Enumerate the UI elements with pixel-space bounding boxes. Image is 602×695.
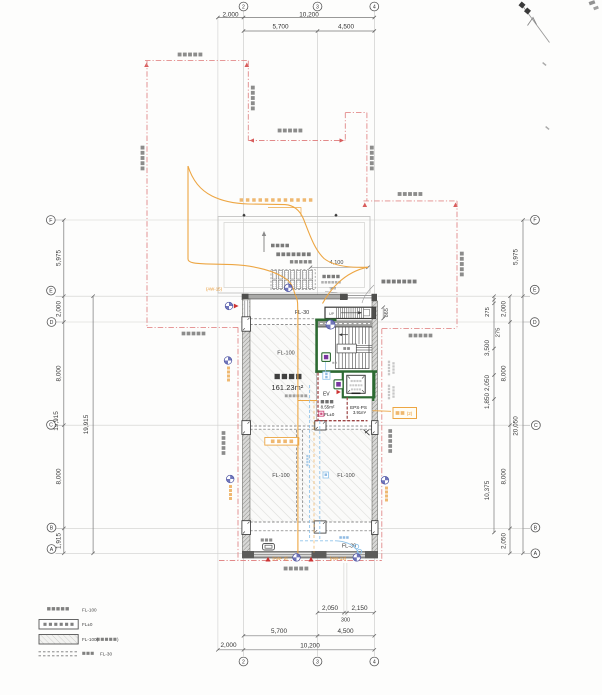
svg-text:A: A xyxy=(50,547,54,553)
svg-text:A: A xyxy=(534,551,538,557)
svg-text:8,000: 8,000 xyxy=(56,365,63,381)
svg-text:3: 3 xyxy=(316,659,319,665)
svg-text:5,975: 5,975 xyxy=(56,250,63,266)
svg-text:2,000: 2,000 xyxy=(56,301,63,317)
svg-text:2,000: 2,000 xyxy=(221,642,237,649)
svg-text:1,915: 1,915 xyxy=(56,533,63,549)
svg-text:4,500: 4,500 xyxy=(338,23,354,30)
svg-text:5,700: 5,700 xyxy=(273,23,289,30)
svg-text:10,375: 10,375 xyxy=(484,480,491,500)
svg-text:FL-30: FL-30 xyxy=(295,310,309,316)
svg-text:B: B xyxy=(50,526,54,532)
svg-text:275: 275 xyxy=(496,328,502,338)
svg-text:4,500: 4,500 xyxy=(338,628,354,635)
svg-text:E: E xyxy=(533,288,537,294)
svg-text:FL-100: FL-100 xyxy=(337,473,354,479)
svg-text:5,975: 5,975 xyxy=(513,249,520,265)
svg-text:EV: EV xyxy=(323,391,330,397)
svg-text:8,000: 8,000 xyxy=(501,365,508,381)
svg-text:2,150: 2,150 xyxy=(352,605,368,612)
svg-text:8,000: 8,000 xyxy=(501,468,508,484)
svg-text:(AW-15): (AW-15) xyxy=(206,286,223,291)
svg-text:10,200: 10,200 xyxy=(300,643,320,650)
svg-text:19,915: 19,915 xyxy=(83,414,90,434)
svg-text:B: B xyxy=(534,526,538,532)
svg-text:F: F xyxy=(49,218,52,224)
svg-text:2: 2 xyxy=(242,4,245,10)
svg-text:C: C xyxy=(534,423,538,429)
svg-text:F: F xyxy=(533,218,536,224)
svg-text:1,850: 1,850 xyxy=(484,393,491,409)
svg-text:2,050: 2,050 xyxy=(501,533,508,549)
svg-text:4: 4 xyxy=(373,4,376,10)
svg-text:FL-100: FL-100 xyxy=(272,473,289,479)
svg-text:161.23m²: 161.23m² xyxy=(272,383,304,392)
svg-text:FL-100: FL-100 xyxy=(277,350,294,356)
svg-text:8,000: 8,000 xyxy=(56,468,63,484)
svg-text:275: 275 xyxy=(485,307,491,317)
svg-text:5,700: 5,700 xyxy=(271,628,287,635)
svg-text:FL±0: FL±0 xyxy=(324,412,335,417)
svg-text:E: E xyxy=(49,289,53,295)
svg-text:[AW- 2]: [AW- 2] xyxy=(272,556,287,561)
svg-text:FL-100: FL-100 xyxy=(82,607,97,612)
svg-text:10,200: 10,200 xyxy=(299,11,319,18)
svg-text:3,500: 3,500 xyxy=(484,340,491,356)
svg-text:8.55m²: 8.55m² xyxy=(321,405,335,410)
svg-text:4: 4 xyxy=(373,659,376,665)
svg-text:300: 300 xyxy=(341,618,350,624)
svg-text:C: C xyxy=(49,423,53,429)
svg-text:3: 3 xyxy=(316,4,319,10)
svg-text:2,050: 2,050 xyxy=(322,605,338,612)
svg-text:2,000: 2,000 xyxy=(501,301,508,317)
svg-text:865: 865 xyxy=(384,308,390,317)
svg-text:FL-30: FL-30 xyxy=(100,652,112,657)
svg-text:FL-100(: FL-100( xyxy=(82,637,99,642)
svg-text:2,050: 2,050 xyxy=(484,375,491,391)
svg-text:UP: UP xyxy=(329,312,335,316)
svg-text:D: D xyxy=(533,320,537,326)
svg-text:2,000: 2,000 xyxy=(223,11,239,18)
svg-text:D: D xyxy=(50,320,54,326)
svg-text:FL±0: FL±0 xyxy=(82,622,93,627)
svg-text:2: 2 xyxy=(242,659,245,665)
svg-text:(2): (2) xyxy=(407,411,413,416)
svg-text:[AW-12]: [AW-12] xyxy=(330,556,346,561)
svg-text:20,050: 20,050 xyxy=(513,416,520,436)
svg-text:3.91m²: 3.91m² xyxy=(353,410,367,415)
